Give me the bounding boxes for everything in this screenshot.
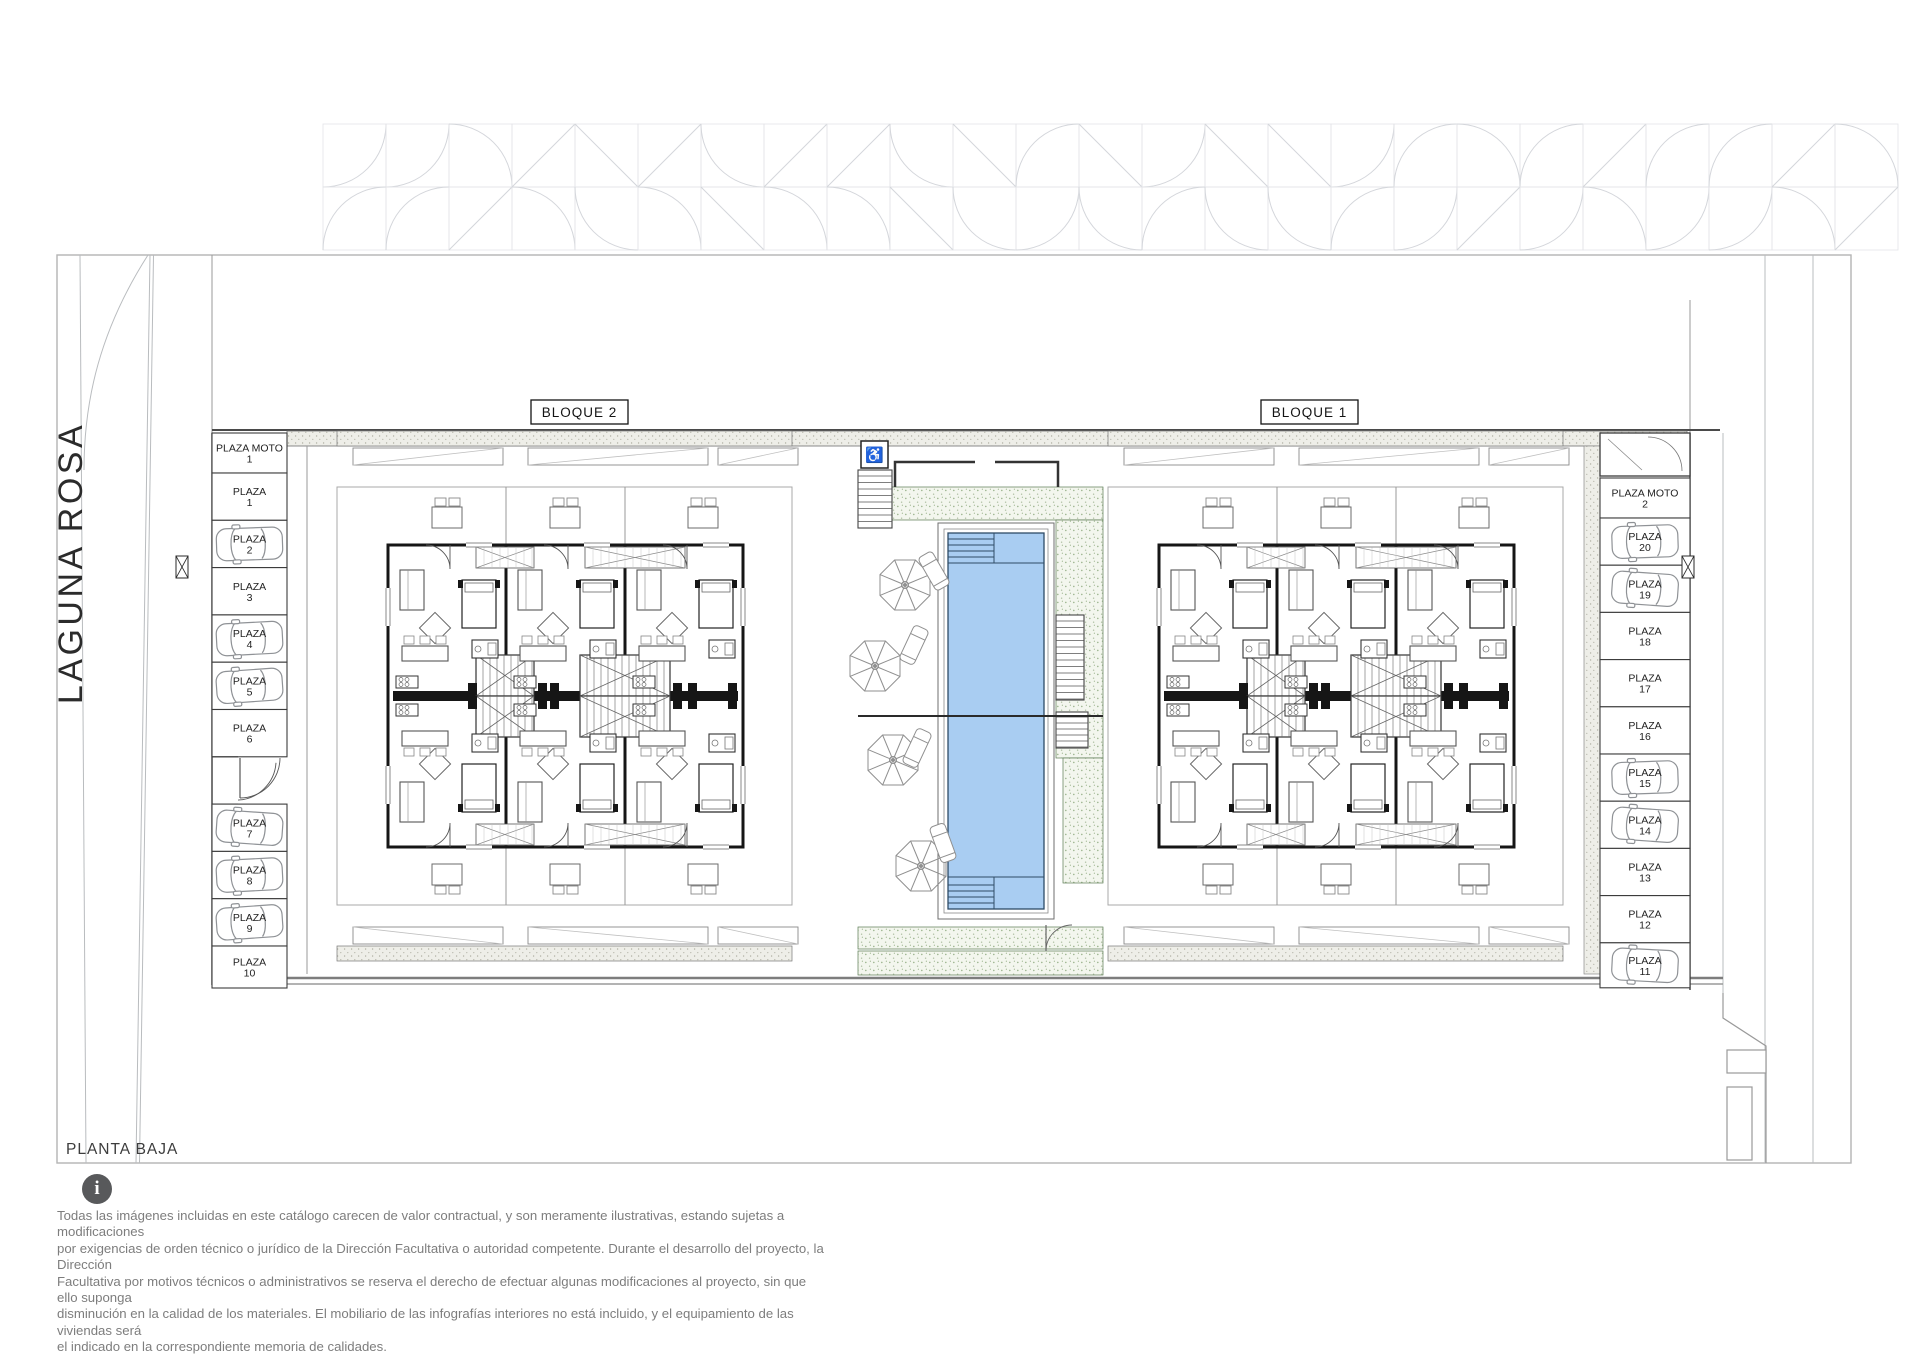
block-1-label-text: BLOQUE 1 [1272,405,1348,420]
parking-stall: PLAZA MOTO1 [212,433,287,473]
parking-stall: PLAZA7 [212,804,287,851]
decorative-tile-band [323,124,1898,250]
disclaimer-line: el indicado en la correspondiente memori… [57,1339,827,1355]
parking-column-right: PLAZA MOTO2PLAZA20PLAZA19PLAZA18PLAZA17P… [1600,433,1690,988]
parking-stall-label: 8 [247,876,253,888]
disclaimer-line: por exigencias de orden técnico o jurídi… [57,1241,827,1274]
disclaimer-text: Todas las imágenes incluidas en este cat… [57,1208,827,1356]
parking-stall-label: 12 [1639,920,1651,932]
parking-stall-label: 1 [247,454,253,466]
parking-stall-label: 19 [1639,589,1651,601]
parking-stall-label: 7 [247,828,253,840]
block-1-label: BLOQUE 1 [1261,400,1358,424]
parking-stall: PLAZA6 [212,710,287,757]
parking-stall-label: 11 [1640,966,1651,978]
parking-stall: PLAZA9 [212,899,287,946]
parking-stall: PLAZA12 [1600,896,1690,943]
parking-stall: PLAZA18 [1600,612,1690,659]
block-2-mirror [337,696,798,961]
block-2-label-text: BLOQUE 2 [542,405,618,420]
parking-stall: PLAZA MOTO2 [1600,478,1690,518]
block-2-label: BLOQUE 2 [531,400,628,424]
block-1 [1108,431,1569,961]
swimming-pool [938,523,1054,919]
parking-stall: PLAZA14 [1600,801,1690,848]
parking-stall-label: 13 [1639,873,1651,885]
disclaimer-line: disminución en la calidad de los materia… [57,1306,827,1339]
parasol-icon [850,641,900,691]
parking-stall-label: 15 [1639,778,1651,790]
sun-lounger [899,624,930,665]
accessible-lift: ♿ [861,441,888,468]
parking-stall: PLAZA11 [1600,943,1690,988]
site-plan-svg: ♿PLAZA MOTO1PLAZA1PLAZA2PLAZA3PLAZA4PLAZ… [0,0,1919,1356]
wheelchair-icon: ♿ [865,446,884,464]
parking-stall: PLAZA16 [1600,707,1690,754]
parking-stall-label: 14 [1639,825,1651,837]
parking-stall: PLAZA3 [212,568,287,615]
parking-stall: PLAZA20 [1600,518,1690,565]
disclaimer-line: Facultativa por motivos técnicos o admin… [57,1274,827,1307]
parking-stall-label: 17 [1639,684,1651,696]
parking-stall: PLAZA19 [1600,565,1690,612]
parking-stall: PLAZA10 [212,946,287,988]
parking-stall: PLAZA17 [1600,660,1690,707]
info-icon: i [82,1174,112,1204]
parking-stall: PLAZA8 [212,851,287,898]
parking-stall-label: 16 [1639,731,1651,743]
parking-stall-label: 2 [1642,499,1648,511]
parking-stall-label: 10 [244,968,256,980]
parking-stall: PLAZA13 [1600,848,1690,895]
parking-stall: PLAZA1 [212,473,287,520]
parking-stall-label: 5 [247,686,253,698]
plan-title: PLANTA BAJA [66,1141,178,1158]
parking-stall-label: 9 [247,923,253,935]
parking-stall: PLAZA15 [1600,754,1690,801]
parking-stall-label: 3 [247,592,253,604]
disclaimer-line: Todas las imágenes incluidas en este cat… [57,1208,827,1241]
block-2 [337,431,798,961]
parking-stall-label: 6 [247,734,253,746]
block-1-mirror [1108,696,1569,961]
parking-column-left: PLAZA MOTO1PLAZA1PLAZA2PLAZA3PLAZA4PLAZA… [212,433,287,988]
parking-stall-label: 2 [247,544,253,556]
parking-stall: PLAZA4 [212,615,287,662]
street-name: LAGUNA ROSA [52,422,90,704]
floor-plan-page: ♿PLAZA MOTO1PLAZA1PLAZA2PLAZA3PLAZA4PLAZ… [0,0,1919,1356]
parking-stall-label: 4 [247,639,253,651]
parking-stall-label: 1 [247,497,253,509]
pool-courtyard: ♿ [850,441,1103,975]
parking-stall: PLAZA2 [212,520,287,567]
parking-stall-label: 18 [1639,637,1651,649]
sun-lounger [902,727,933,768]
parking-stall-label: 20 [1639,542,1651,554]
parking-stall: PLAZA5 [212,662,287,709]
